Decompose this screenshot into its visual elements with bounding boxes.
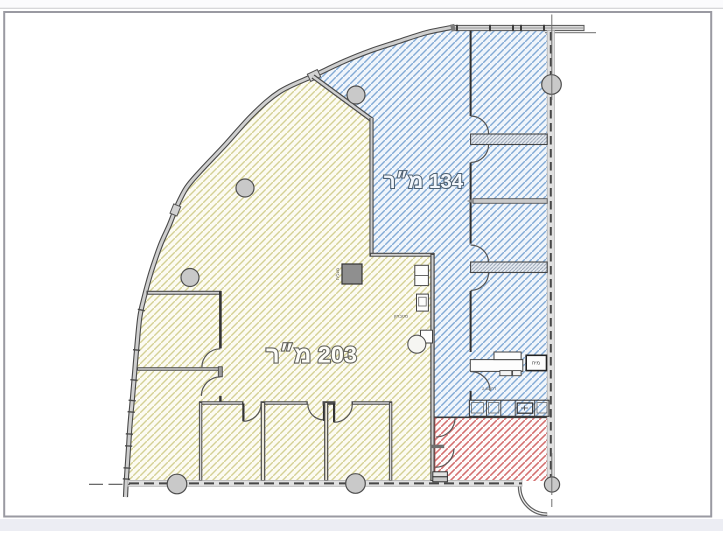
svg-text:מטבחון: מטבחון <box>394 314 408 319</box>
svg-text:‭ר״מ 203‬: ‭ר״מ 203‬ <box>266 342 357 368</box>
svg-text:מעלית: מעלית <box>335 268 340 280</box>
svg-text:‭ר״מ 134‬: ‭ר״מ 134‬ <box>384 170 464 193</box>
svg-text:‭2.80 חד‬: ‭2.80 חד‬ <box>482 386 496 391</box>
svg-text:מיח: מיח <box>532 361 540 367</box>
